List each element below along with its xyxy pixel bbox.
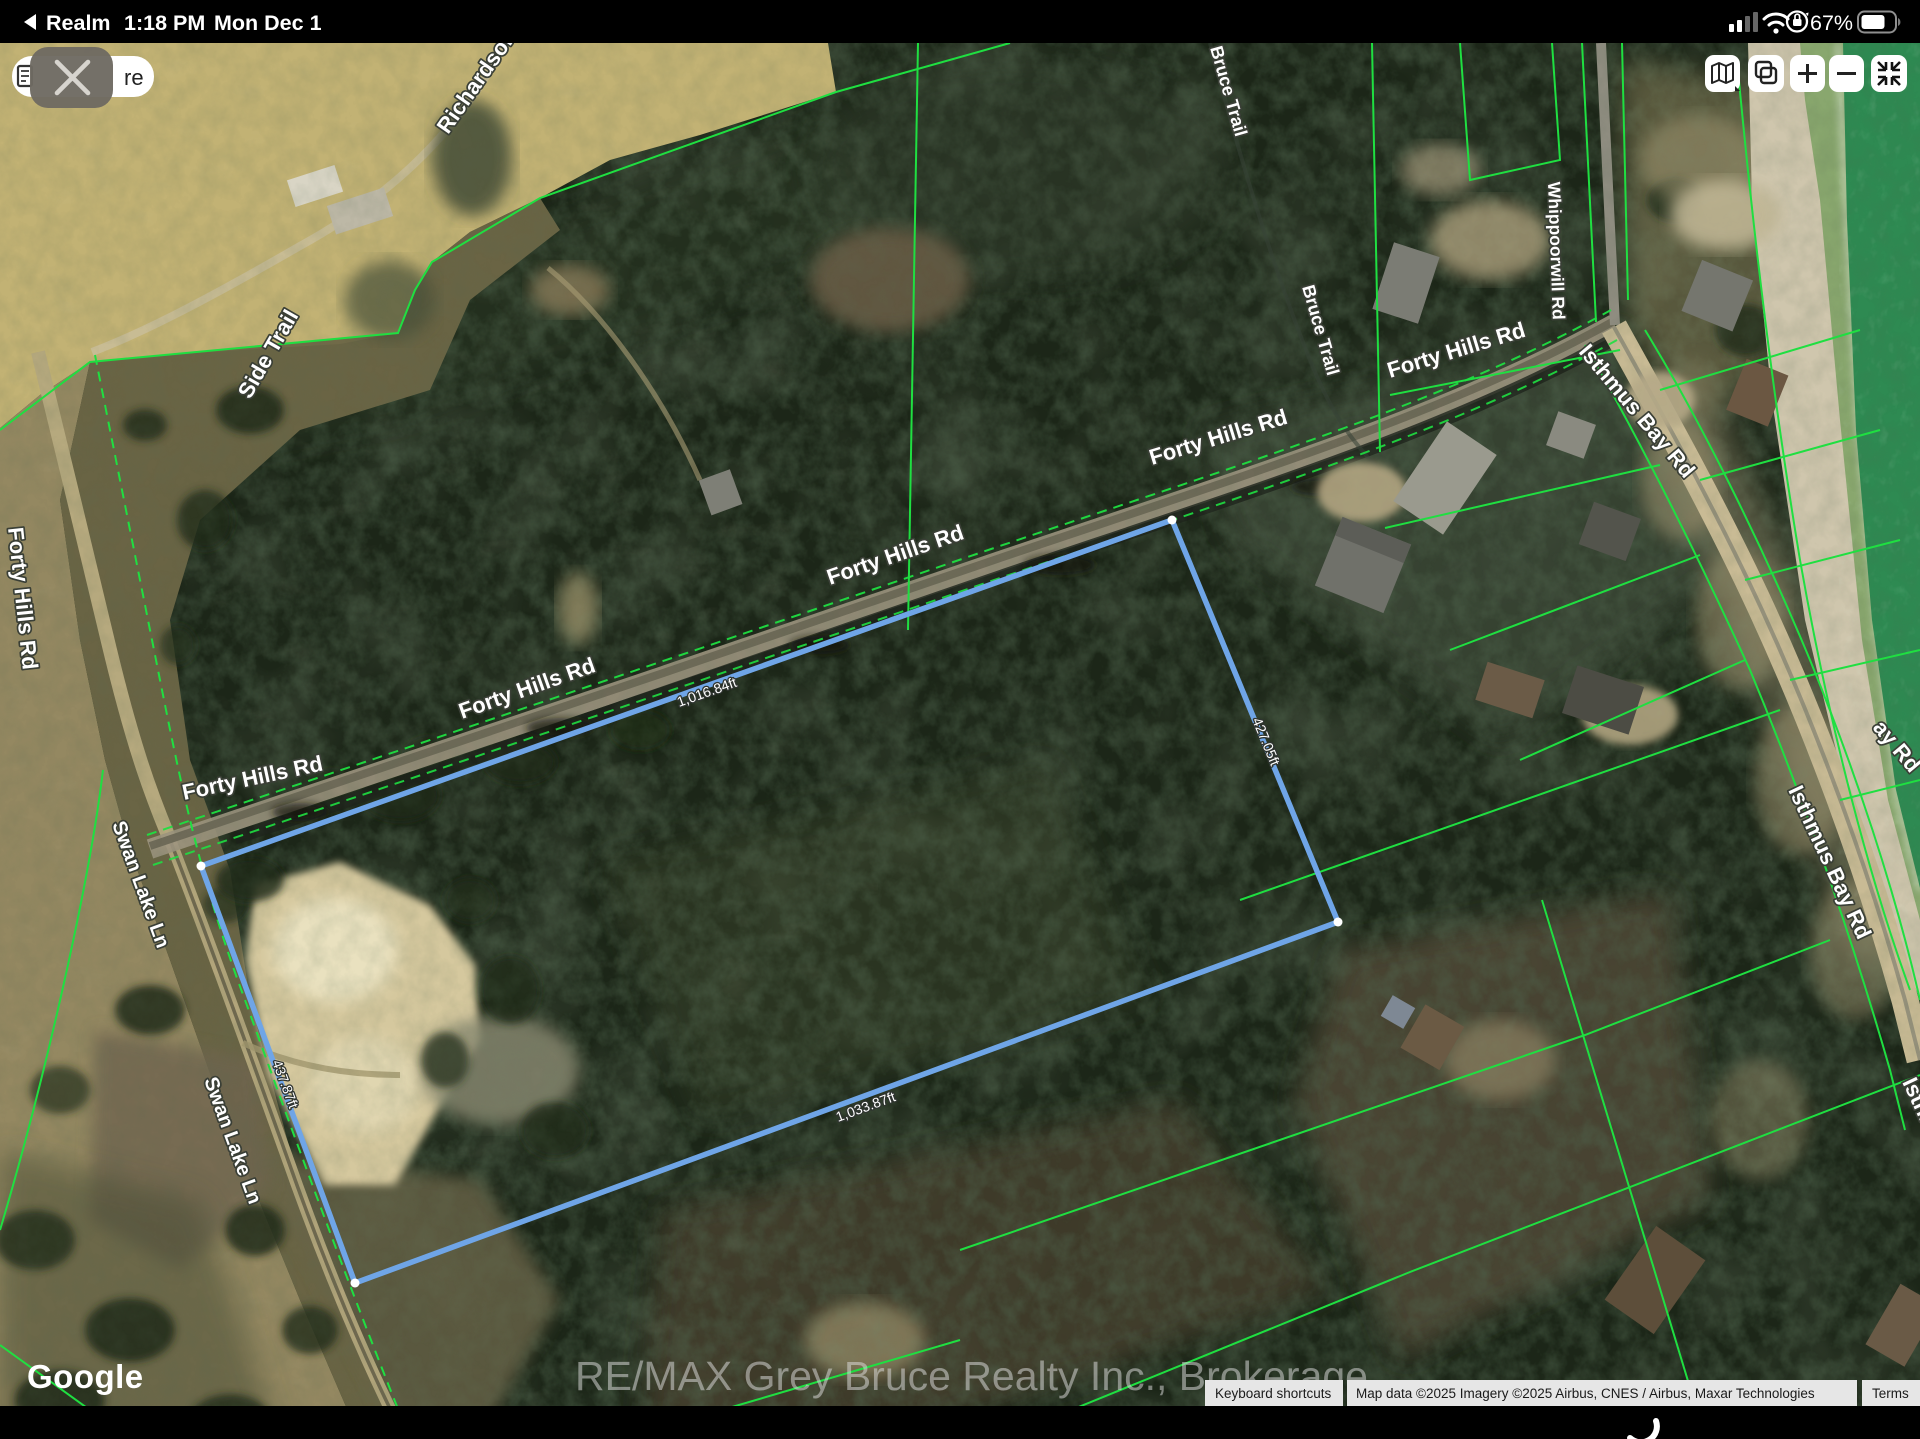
svg-text:Google: Google (27, 1358, 144, 1395)
svg-text:Terms: Terms (1872, 1386, 1909, 1401)
svg-text:Mon Dec 1: Mon Dec 1 (214, 11, 322, 35)
svg-text:67%: 67% (1810, 11, 1853, 35)
svg-text:Keyboard shortcuts: Keyboard shortcuts (1215, 1386, 1332, 1401)
svg-text:1:18 PM: 1:18 PM (124, 11, 205, 35)
svg-text:Map data ©2025 Imagery ©2025 A: Map data ©2025 Imagery ©2025 Airbus, CNE… (1356, 1386, 1815, 1401)
svg-text:Realm: Realm (46, 11, 111, 35)
svg-text:re: re (124, 65, 144, 90)
